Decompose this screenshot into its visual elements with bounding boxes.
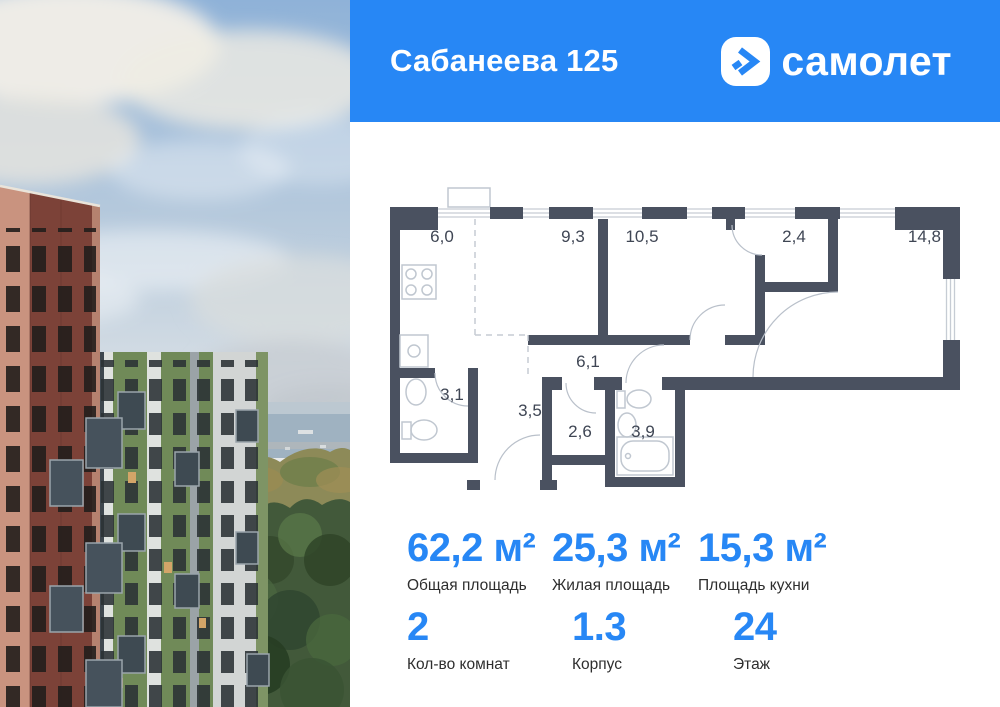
bathroom1-sink-icon [406,379,426,405]
stat-floor-label: Этаж [733,656,777,674]
kitchen-sink-icon [400,335,428,367]
stat-floor: 24 Этаж [733,607,777,674]
stat-kitchen-area: 15,3 м² Площадь кухни [698,528,826,595]
bathroom1-toilet-icon [402,420,437,440]
stat-rooms-value: 2 [407,607,510,647]
stat-total-area: 62,2 м² Общая площадь [407,528,535,595]
floor-plan-drawing: 6,0 9,3 10,5 2,4 14,8 3,1 3,5 6,1 2,6 3,… [390,185,970,490]
apartment-card: Сабанеева 125 самолет [0,0,1000,707]
stat-total-area-value: 62,2 м² [407,528,535,568]
bathroom2-toilet-icon [617,390,651,408]
stat-living-area: 25,3 м² Жилая площадь [552,528,680,595]
stat-building-value: 1.3 [572,607,626,647]
samolet-logo-icon [721,37,770,86]
room-labels: 6,0 9,3 10,5 2,4 14,8 3,1 3,5 6,1 2,6 3,… [430,227,941,441]
stat-rooms-label: Кол-во комнат [407,656,510,674]
stat-building-label: Корпус [572,656,626,674]
room-label-wardrobe: 2,4 [782,227,806,246]
building-photo-art [0,0,350,707]
room-label-storeroom: 2,6 [568,422,592,441]
stat-kitchen-area-value: 15,3 м² [698,528,826,568]
stat-kitchen-area-label: Площадь кухни [698,577,826,595]
kitchen-zone-dashes [475,219,528,377]
stove-icon [402,265,436,299]
brand-name: самолет [781,41,952,82]
project-title: Сабанеева 125 [390,43,618,79]
header: Сабанеева 125 самолет [350,0,1000,122]
room-label-living-zone: 9,3 [561,227,585,246]
building-photo [0,0,350,707]
stat-total-area-label: Общая площадь [407,577,535,595]
room-label-bedroom: 10,5 [625,227,658,246]
room-label-bathroom-2: 3,9 [631,422,655,441]
bathtub-icon [617,437,673,475]
brand-logo: самолет [721,37,952,86]
fixtures [400,265,673,475]
green-tower [96,352,269,707]
room-label-bathroom-1: 3,1 [440,385,464,404]
stat-floor-value: 24 [733,607,777,647]
ship [298,430,313,434]
stat-living-area-label: Жилая площадь [552,577,680,595]
stat-living-area-value: 25,3 м² [552,528,680,568]
balcony-outline [448,188,490,207]
stat-rooms: 2 Кол-во комнат [407,607,510,674]
room-label-kitchen: 6,0 [430,227,454,246]
floor-plan: 6,0 9,3 10,5 2,4 14,8 3,1 3,5 6,1 2,6 3,… [390,185,970,490]
info-panel: Сабанеева 125 самолет [350,0,1000,707]
room-label-hallway: 3,5 [518,401,542,420]
stat-building: 1.3 Корпус [572,607,626,674]
walls [390,207,960,490]
room-label-living-room: 14,8 [908,227,941,246]
room-label-corridor: 6,1 [576,352,600,371]
